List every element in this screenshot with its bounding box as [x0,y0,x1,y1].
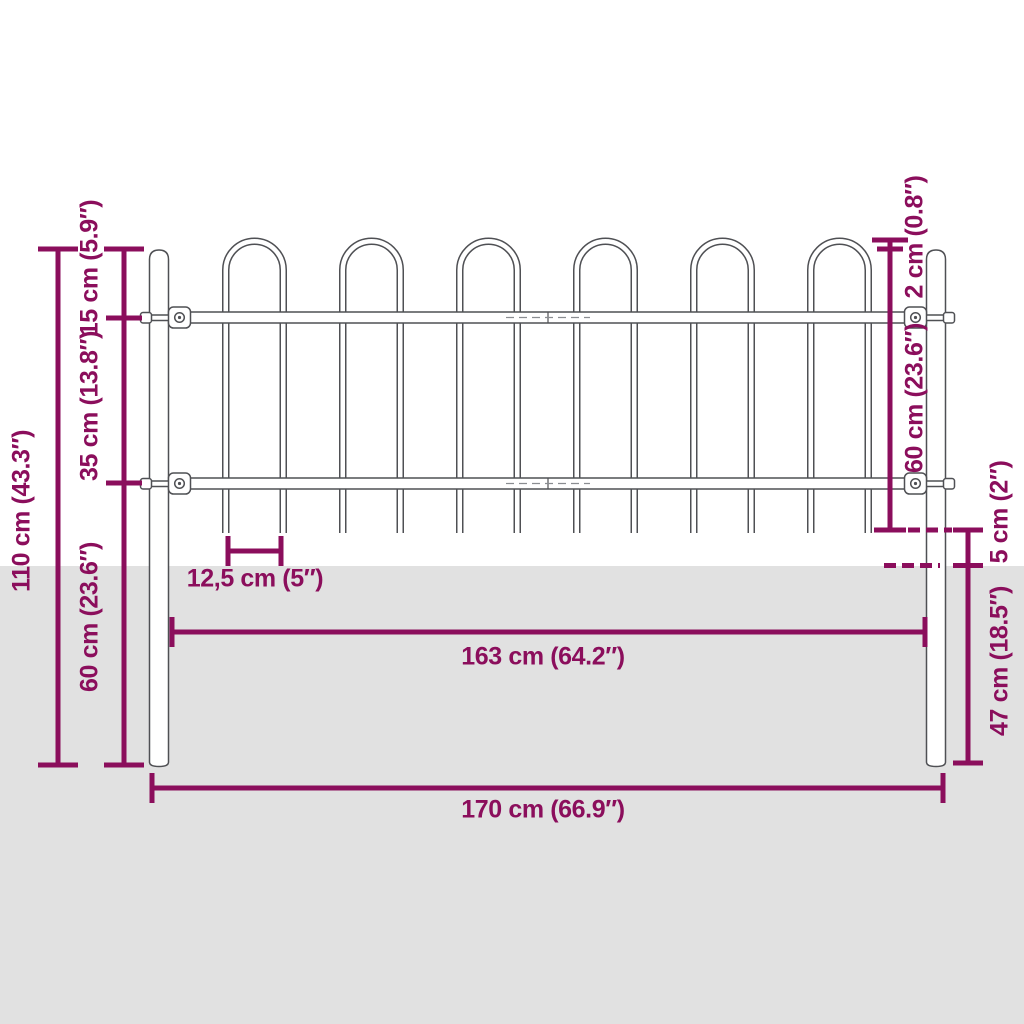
dim-label-rail-spacing: 35 cm (13.8″) [78,331,103,481]
dim-bar-spacing [228,536,281,566]
right-post [927,250,946,767]
dim-label-fence-panel-height: 60 cm (23.6″) [903,323,928,473]
dim-label-total-height: 110 cm (43.3″) [10,430,35,592]
left-post [150,250,169,767]
fence-dimension-diagram: 110 cm (43.3″) 15 cm (5.9″) 35 cm (13.8″… [0,0,1024,1024]
diagram-canvas [0,0,1024,1024]
dim-label-bar-above-ground: 5 cm (2″) [988,461,1013,564]
dim-label-hoop-above-post: 2 cm (0.8″) [903,176,928,299]
dim-label-panel-width: 163 cm (64.2″) [461,645,624,670]
dim-label-total-width: 170 cm (66.9″) [461,798,624,823]
dim-label-post-underground: 47 cm (18.5″) [988,586,1013,736]
dim-label-hoop-section: 15 cm (5.9″) [78,200,103,336]
dim-label-lower-post-left: 60 cm (23.6″) [78,542,103,692]
dim-label-bar-spacing: 12,5 cm (5″) [187,567,323,592]
